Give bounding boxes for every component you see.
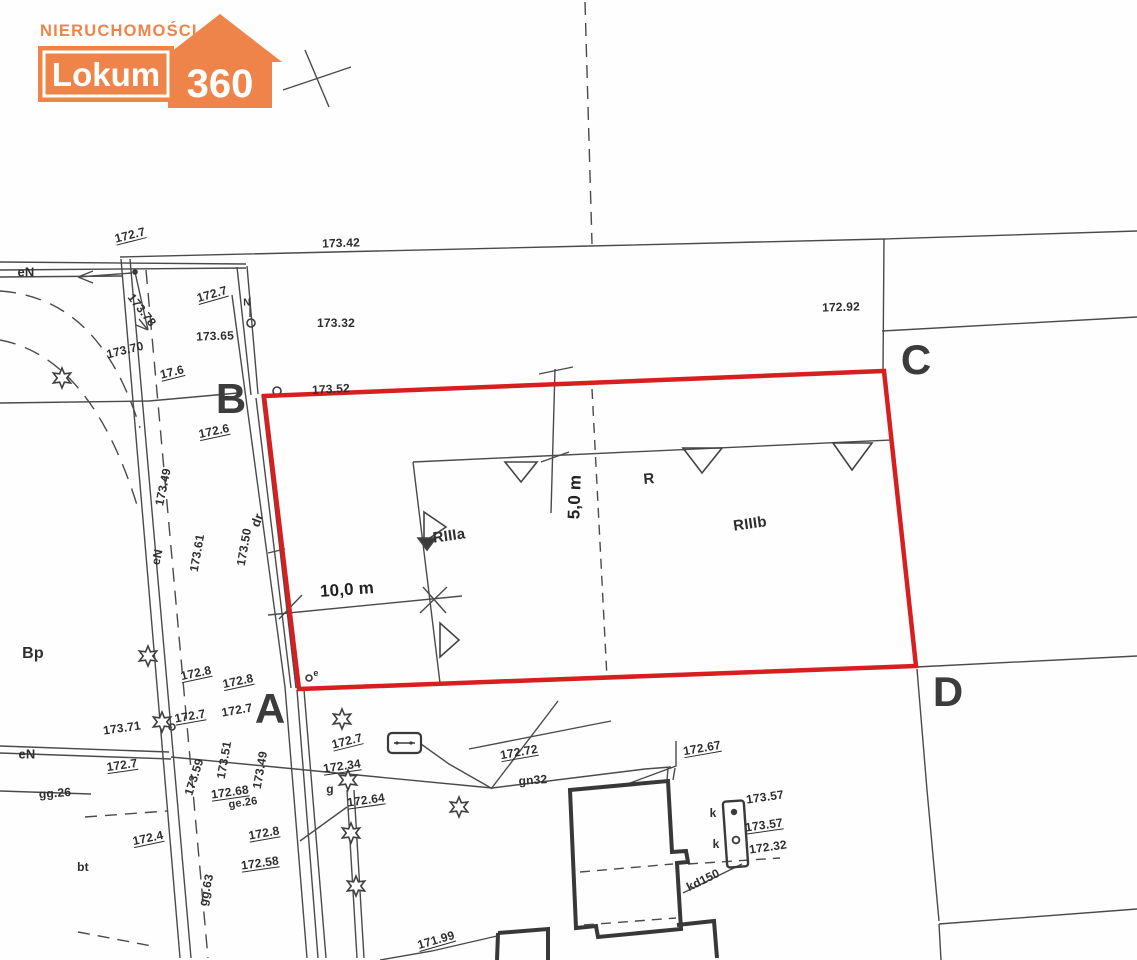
map-label: bt <box>77 860 89 874</box>
map-labels-layer: 172.7173.42eN173.78172.7173.65173.7017.6… <box>0 0 1137 960</box>
map-label: 173.78 <box>125 291 159 329</box>
map-label: 173.50 <box>234 527 254 567</box>
map-label: 172.92 <box>822 299 860 314</box>
map-label: 172.7 <box>330 730 363 751</box>
logo-top-text: NIERUCHOMOŚCI <box>40 21 198 40</box>
map-label: e <box>313 668 318 678</box>
map-label: gn32 <box>518 772 548 788</box>
map-label: 5,0 m <box>564 474 586 519</box>
map-label: 173.49 <box>250 750 270 790</box>
map-label: RIIIb <box>732 513 768 534</box>
map-label: 171.99 <box>416 928 456 952</box>
cadastral-map: 172.7173.42eN173.78172.7173.65173.7017.6… <box>0 0 1137 960</box>
map-label: g <box>326 782 334 796</box>
map-label: 173.57 <box>744 815 783 834</box>
lokum360-logo: NIERUCHOMOŚCI Lokum 360 <box>26 6 286 118</box>
map-label: 172.7 <box>113 224 146 245</box>
map-label: 173.57 <box>745 787 784 806</box>
map-label: 173.51 <box>214 740 234 780</box>
map-label: 173.70 <box>105 339 145 362</box>
map-label: 173.42 <box>322 235 360 250</box>
map-label: 173.59 <box>181 757 206 797</box>
map-label: 173.71 <box>102 718 141 737</box>
map-label: 172.7 <box>106 756 139 774</box>
map-label: eN <box>17 265 34 280</box>
map-label: dr <box>248 511 267 529</box>
map-label: 172.64 <box>346 790 385 809</box>
logo-number-text: 360 <box>187 62 254 106</box>
map-label: 172.7 <box>174 706 207 725</box>
map-label: RIIIa <box>432 525 467 546</box>
map-label: 173.52 <box>312 381 351 397</box>
map-label: 172.32 <box>748 837 787 856</box>
logo-name-text: Lokum <box>52 56 160 93</box>
map-label: 172.7 <box>221 700 254 719</box>
map-label: 173.61 <box>187 533 207 573</box>
map-label: 172.67 <box>682 738 722 758</box>
plot-corner-letter: C <box>901 339 931 381</box>
map-label: N <box>243 298 250 309</box>
map-label: 10,0 m <box>319 578 374 602</box>
plot-corner-letter: D <box>933 671 963 713</box>
plot-corner-letter: B <box>216 378 246 420</box>
map-label: Bp <box>22 645 44 663</box>
map-label: k <box>713 837 720 851</box>
map-label: 172.7 <box>195 283 229 305</box>
map-label: 172.72 <box>499 742 539 762</box>
map-label: 172.8 <box>248 823 281 842</box>
map-label: 172.34 <box>322 756 361 775</box>
map-label: eN <box>149 548 166 566</box>
map-label: 172.8 <box>221 671 254 691</box>
plot-corner-letter: A <box>255 688 285 730</box>
map-label: 173.65 <box>196 328 234 343</box>
map-label: 172.58 <box>240 853 279 872</box>
map-label: 172.4 <box>131 828 164 848</box>
map-label: 173.32 <box>317 316 355 330</box>
map-label: kd150 <box>684 866 722 894</box>
map-label: 172.8 <box>179 663 212 683</box>
map-label: gg.26 <box>38 785 71 801</box>
map-label: 173.49 <box>152 467 174 507</box>
map-label: gg.63 <box>196 873 216 908</box>
map-label: eN <box>18 747 35 762</box>
map-label: R <box>643 470 655 488</box>
map-label: ge.26 <box>228 795 259 811</box>
map-label: 172.6 <box>197 421 230 441</box>
map-label: 17.6 <box>159 362 186 381</box>
map-label: k <box>710 806 717 820</box>
